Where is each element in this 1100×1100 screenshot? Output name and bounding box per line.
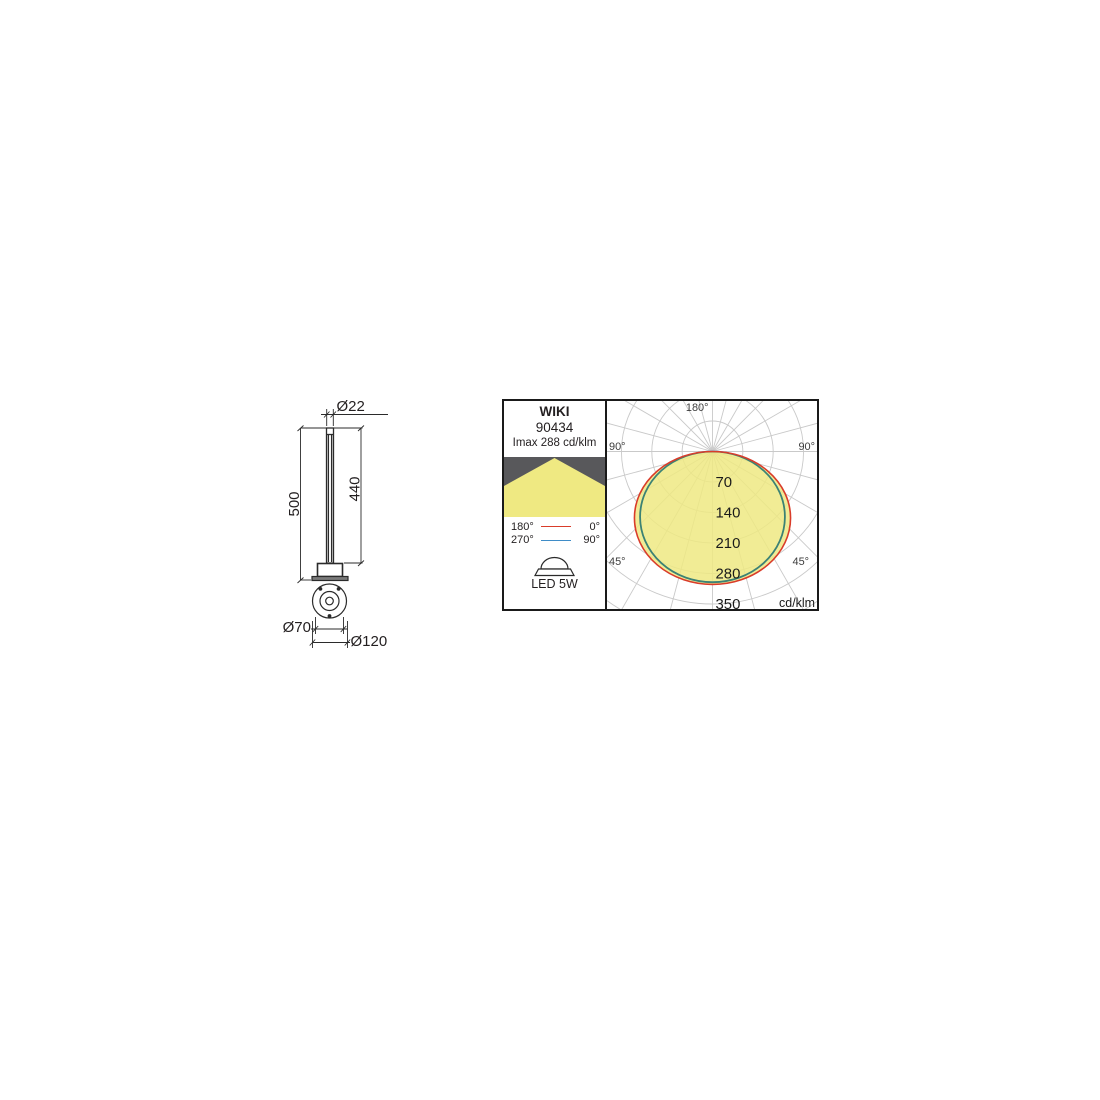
imax-value: Imax 288 cd/klm: [504, 437, 605, 450]
photometric-panel: WIKI 90434 Imax 288 cd/klm 180° 0° 270° …: [502, 399, 819, 611]
article-code: 90434: [504, 420, 605, 435]
dim-pole-height: 440: [347, 476, 364, 501]
photometry-info-cell: WIKI 90434 Imax 288 cd/klm 180° 0° 270° …: [504, 401, 607, 609]
top-view: [313, 584, 347, 618]
angle-label-45-left: 45°: [609, 556, 626, 568]
distribution-curves: [634, 452, 790, 585]
model-name: WIKI: [504, 404, 605, 419]
angle-label-90-right: 90°: [798, 441, 815, 453]
ring-value-label: 70: [715, 474, 732, 491]
legend-label: 90°: [574, 534, 600, 546]
page: Ø22 500 440 Ø70 Ø120 WIKI 90434 Imax 288…: [0, 0, 1100, 1100]
front-view: [312, 428, 348, 581]
legend-label: 180°: [511, 521, 538, 533]
polar-distribution-chart: 70140210280350180°90°90°45°45°cd/klm: [607, 401, 817, 609]
angle-label-45-right: 45°: [792, 556, 809, 568]
polar-chart-cell: 70140210280350180°90°90°45°45°cd/klm: [607, 401, 817, 609]
light-beam-icon: [504, 457, 605, 517]
dim-bolt-circle: Ø70: [283, 619, 311, 636]
ground-plate: [312, 577, 348, 581]
legend-line-blue: [541, 540, 571, 541]
angle-label-180: 180°: [686, 402, 709, 414]
ring-value-label: 140: [715, 505, 740, 522]
legend-label: 0°: [574, 521, 600, 533]
legend-label: 270°: [511, 534, 538, 546]
ring-value-label: 210: [715, 535, 740, 552]
led-icon: [532, 552, 577, 577]
ring-value-label: 280: [715, 566, 740, 583]
bolt-hole: [328, 614, 332, 618]
legend-line-red: [541, 526, 571, 527]
bolt-hole: [337, 587, 341, 591]
product-dimension-drawing: Ø22 500 440 Ø70 Ø120: [268, 392, 398, 654]
lamp-type-label: LED 5W: [504, 577, 605, 591]
legend-row-c90-c270: 270° 90°: [511, 534, 600, 548]
ring-value-label: 350: [715, 596, 740, 609]
dim-base-diameter: Ø120: [351, 633, 388, 650]
dim-overall-height: 500: [286, 491, 303, 516]
angle-label-90-left: 90°: [609, 441, 626, 453]
unit-label: cd/klm: [779, 596, 815, 609]
plane-legend: 180° 0° 270° 90°: [504, 520, 605, 547]
legend-row-c0-c180: 180° 0°: [511, 520, 600, 534]
dim-top-diameter: Ø22: [337, 398, 365, 415]
bolt-hole: [319, 587, 323, 591]
